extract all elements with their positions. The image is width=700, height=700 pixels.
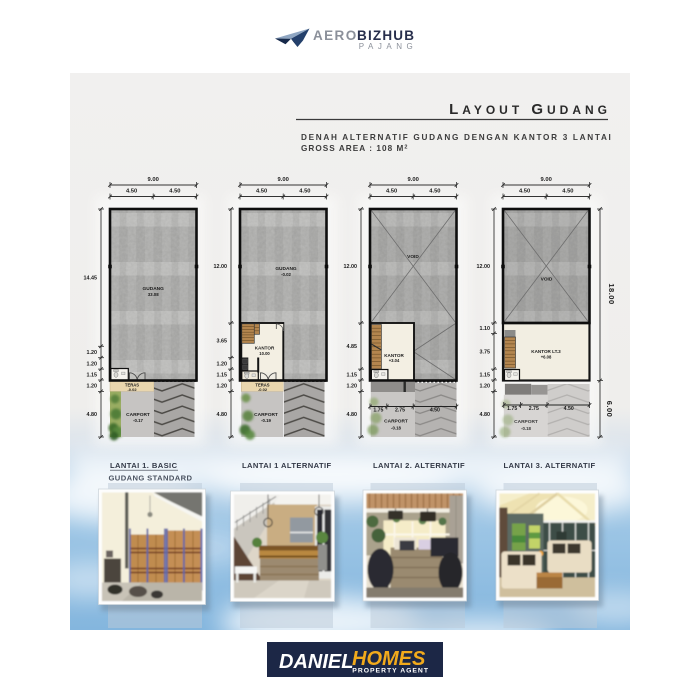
- svg-text:3.65: 3.65: [217, 338, 228, 344]
- svg-text:33.08: 33.08: [148, 292, 160, 297]
- svg-text:4.50: 4.50: [256, 189, 267, 195]
- svg-text:1.20: 1.20: [87, 350, 98, 356]
- svg-text:-0.19: -0.19: [261, 418, 272, 423]
- svg-text:+6.08: +6.08: [541, 355, 552, 360]
- svg-text:10.00: 10.00: [259, 351, 270, 356]
- svg-text:3.75: 3.75: [480, 349, 491, 355]
- svg-text:1.20: 1.20: [217, 361, 228, 367]
- svg-text:CARPORT: CARPORT: [384, 419, 408, 425]
- svg-text:DENAH ALTERNATIF GUDANG DENGAN: DENAH ALTERNATIF GUDANG DENGAN KANTOR 3 …: [301, 133, 613, 142]
- svg-text:4.50: 4.50: [386, 189, 397, 195]
- svg-text:18.00: 18.00: [607, 283, 616, 304]
- svg-text:PAJANG: PAJANG: [359, 42, 417, 51]
- svg-text:12.00: 12.00: [477, 264, 491, 270]
- svg-text:4.50: 4.50: [562, 189, 573, 195]
- svg-text:14.45: 14.45: [84, 276, 98, 282]
- svg-text:4.80: 4.80: [347, 412, 358, 418]
- svg-text:1.20: 1.20: [217, 384, 228, 390]
- svg-text:1.20: 1.20: [87, 361, 98, 367]
- svg-text:4.50: 4.50: [564, 406, 574, 412]
- svg-text:9.00: 9.00: [278, 177, 289, 183]
- svg-text:LANTAI 1 ALTERNATIF: LANTAI 1 ALTERNATIF: [242, 461, 332, 470]
- svg-text:VOID: VOID: [407, 254, 419, 260]
- svg-text:9.00: 9.00: [148, 177, 159, 183]
- svg-text:2.75: 2.75: [529, 406, 539, 412]
- svg-text:-0.02: -0.02: [281, 272, 292, 277]
- svg-text:DANIEL: DANIEL: [279, 651, 353, 673]
- svg-text:KANTOR: KANTOR: [255, 346, 275, 351]
- svg-text:1.15: 1.15: [347, 373, 358, 379]
- svg-text:+3.04: +3.04: [389, 358, 400, 363]
- svg-text:4.50: 4.50: [126, 189, 137, 195]
- svg-text:LANTAI 2. ALTERNATIF: LANTAI 2. ALTERNATIF: [373, 461, 465, 470]
- svg-text:4.50: 4.50: [429, 189, 440, 195]
- svg-text:1.20: 1.20: [347, 384, 358, 390]
- svg-text:4.50: 4.50: [430, 408, 440, 414]
- svg-text:BIZHUB: BIZHUB: [357, 28, 415, 43]
- svg-text:9.00: 9.00: [541, 177, 552, 183]
- svg-text:CARPORT: CARPORT: [514, 419, 538, 425]
- svg-text:12.00: 12.00: [214, 264, 228, 270]
- svg-text:1.20: 1.20: [480, 384, 491, 390]
- svg-text:12.00: 12.00: [344, 264, 358, 270]
- svg-text:GUDANG STANDARD: GUDANG STANDARD: [109, 474, 193, 483]
- svg-text:-0.18: -0.18: [391, 426, 402, 431]
- svg-text:LAYOUT GUDANG: LAYOUT GUDANG: [449, 101, 611, 118]
- svg-text:-0.02: -0.02: [258, 387, 268, 392]
- svg-text:6.00: 6.00: [605, 401, 614, 418]
- svg-text:2.75: 2.75: [395, 408, 405, 414]
- svg-text:1.15: 1.15: [87, 373, 98, 379]
- svg-text:4.80: 4.80: [87, 412, 98, 418]
- svg-text:-0.17: -0.17: [133, 418, 144, 423]
- svg-text:KANTOR LT.3: KANTOR LT.3: [531, 349, 561, 354]
- svg-text:-0.18: -0.18: [521, 426, 532, 431]
- svg-text:VOID: VOID: [541, 277, 553, 283]
- svg-text:4.80: 4.80: [217, 412, 228, 418]
- svg-text:PROPERTY AGENT: PROPERTY AGENT: [352, 668, 429, 675]
- svg-text:4.50: 4.50: [519, 189, 530, 195]
- svg-text:1.75: 1.75: [507, 406, 517, 412]
- svg-text:GROSS AREA : 108 M2: GROSS AREA : 108 M2: [301, 144, 408, 153]
- svg-text:1.75: 1.75: [373, 408, 383, 414]
- svg-text:AERO: AERO: [313, 28, 358, 43]
- svg-text:LANTAI 1. BASIC: LANTAI 1. BASIC: [110, 461, 178, 470]
- svg-text:4.80: 4.80: [480, 412, 491, 418]
- svg-text:4.50: 4.50: [299, 189, 310, 195]
- svg-text:4.50: 4.50: [169, 189, 180, 195]
- svg-text:4.85: 4.85: [347, 344, 358, 350]
- svg-text:-0.02: -0.02: [127, 387, 137, 392]
- svg-text:LANTAI 3. ALTERNATIF: LANTAI 3. ALTERNATIF: [504, 461, 596, 470]
- svg-text:1.15: 1.15: [217, 373, 228, 379]
- svg-text:1.20: 1.20: [87, 384, 98, 390]
- svg-text:1.15: 1.15: [480, 373, 491, 379]
- svg-text:9.00: 9.00: [408, 177, 419, 183]
- svg-text:1.10: 1.10: [480, 326, 491, 332]
